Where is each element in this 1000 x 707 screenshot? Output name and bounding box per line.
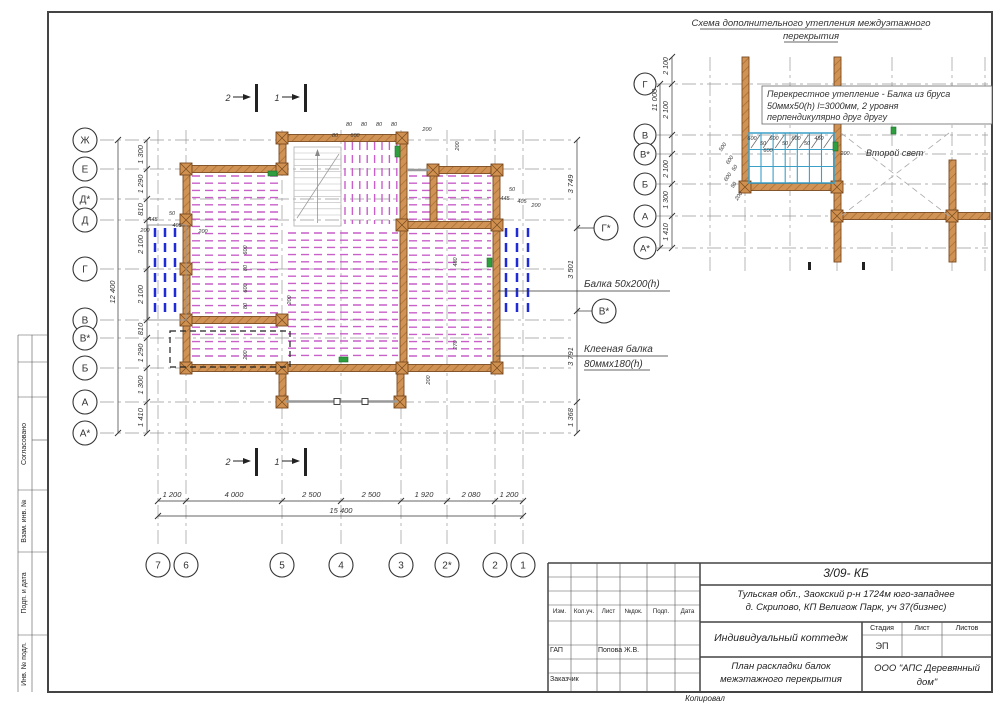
insulation-note-line1: Перекрестное утепление - Балка из бруса [767, 89, 950, 99]
axis-bubble-label: 2 [492, 561, 498, 572]
axis-bubble-label: 5 [279, 561, 285, 572]
axis-bubble-label: В [82, 316, 89, 327]
drawing-sheet: 1 3001 2908102 1002 1008101 2901 3001 41… [0, 0, 1000, 707]
dim-label: 270 [453, 339, 459, 350]
dim-label: 1 [274, 457, 279, 467]
dim-label: 1 [274, 93, 279, 103]
dim-label: 80 [332, 133, 339, 139]
dim-label: 80 [391, 122, 398, 128]
col-list-header: Лист [597, 608, 620, 615]
dim-label: 200 [197, 229, 208, 235]
dim-label: 200 [287, 294, 293, 305]
dim-label: 50 [804, 141, 811, 147]
second-light-label: Второй свет [866, 148, 924, 158]
insulation-note-line3: перпендикулярно друг другу [767, 112, 888, 122]
dim-label: 1 290 [136, 174, 145, 194]
dim-label: 200 [421, 127, 432, 133]
object-name: Индивидуальный коттедж [700, 632, 862, 644]
dim-label: 50 [782, 141, 789, 147]
detail-overall-dim: 11 000 [650, 88, 659, 111]
dim-label: 80 [243, 302, 249, 309]
axis-bubble-label: В* [640, 149, 650, 160]
dim-label: 1 290 [136, 343, 145, 363]
dim-label: 1 200 [500, 490, 520, 499]
col-podp-header: Подп. [647, 608, 675, 615]
dim-label: 2 100 [663, 57, 670, 76]
dim-label: 445 [148, 217, 158, 223]
dim-label: 50 [760, 141, 767, 147]
axis-bubble-label: Г [642, 79, 647, 90]
dim-label: 2 100 [663, 160, 670, 179]
dim-label: 4 000 [225, 490, 245, 499]
detail-scheme-title-line1: Схема дополнительного утепления междуэта… [691, 18, 930, 29]
dim-label: 810 [136, 202, 145, 215]
axis-bubble-label: 7 [155, 561, 161, 572]
stamp-approved-label: Согласовано [18, 399, 32, 489]
col-izm-header: Изм. [548, 608, 571, 615]
dim-label: 480 [453, 256, 459, 266]
dim-label: 1 300 [136, 375, 145, 395]
dim-label: 600 [763, 148, 773, 154]
axis-bubble-label: 3 [398, 561, 404, 572]
dim-label: 80 [346, 122, 353, 128]
beam-50x200-label: Балка 50x200(h) [584, 279, 660, 290]
dim-label: 80 [361, 122, 368, 128]
stage-value: ЭП [862, 641, 902, 651]
glued-beam-label-line2: 80ммх180(h) [584, 359, 643, 370]
axis-bubble-label: 6 [183, 561, 189, 572]
detail-scheme-title-line2: перекрытия [783, 31, 839, 42]
dim-label: 1 410 [136, 407, 145, 427]
axis-bubble-label: Г [82, 265, 88, 276]
dim-label: 600 [723, 171, 734, 183]
dim-label: 200 [839, 151, 850, 157]
axis-bubble-label: А [642, 211, 649, 222]
dim-label: 1 410 [663, 223, 670, 241]
axis-bubble-label: Д [82, 216, 89, 227]
glued-beam-label-line1: Клееная балка [584, 343, 653, 355]
dim-label: 810 [136, 322, 145, 335]
plan-overall-width-dim: 15 400 [330, 506, 354, 515]
gap-name-value: Попова Ж.В. [598, 647, 658, 654]
dim-label: 405 [172, 223, 182, 229]
sheet-name-line1: План раскладки балок [700, 661, 862, 672]
stamp-podp-data-label: Подп. и дата [18, 552, 32, 634]
stamp-inv-podl-label: Инв. № подл. [18, 636, 32, 692]
gap-role-label: ГАП [550, 647, 572, 654]
axis-bubble-label: А [82, 398, 89, 409]
dim-label: 600 [243, 282, 249, 292]
axis-bubble-label: Г* [601, 224, 610, 235]
dim-label: 445 [500, 196, 510, 202]
axis-bubble-label: В* [80, 334, 91, 345]
axis-bubble-label: Б [642, 179, 648, 190]
dim-label: 2 100 [136, 234, 145, 255]
sheets-header: Листов [942, 625, 992, 632]
plan-overall-height-dim: 12 400 [108, 280, 117, 304]
axis-bubble-label: 4 [338, 561, 344, 572]
copied-by-label: Копировал [660, 694, 750, 703]
dim-label: 2 100 [663, 101, 670, 120]
sheet-header: Лист [902, 625, 942, 632]
dim-label: 600 [350, 133, 360, 139]
stamp-vzam-inv-label: Взам. инв. № [18, 490, 32, 552]
col-koluch-header: Кол.уч. [571, 608, 597, 615]
dim-label: 50 [509, 187, 516, 193]
axis-bubble-label: Д* [80, 195, 91, 206]
dim-label: 600 [243, 244, 249, 254]
dim-label: 200 [243, 349, 249, 360]
axis-bubble-label: А* [640, 243, 650, 254]
col-data-header: Дата [675, 608, 700, 615]
dim-label: 50 [169, 211, 176, 217]
axis-bubble-label: В [642, 130, 648, 141]
dim-label: 2 [224, 93, 230, 103]
stage-header: Стадия [862, 625, 902, 632]
dim-label: 1 920 [415, 490, 435, 499]
dim-label: 3 791 [566, 347, 575, 366]
sheet-name-line2: межэтажного перекрытия [700, 674, 862, 685]
dim-label: 1 368 [566, 407, 575, 427]
col-ndok-header: №док. [620, 608, 647, 615]
dim-label: 3 749 [566, 174, 575, 194]
dim-label: 2 500 [301, 490, 322, 499]
axis-bubble-label: А* [80, 429, 91, 440]
dim-label: 600 [769, 136, 779, 142]
dim-label: 600 [791, 136, 801, 142]
dim-label: 2 [224, 457, 230, 467]
dim-label: 1 300 [136, 144, 145, 164]
axis-bubble-label: 1 [520, 561, 526, 572]
project-address-line1: Тульская обл., Заокский р-н 1724м юго-за… [700, 589, 992, 600]
dim-label: 2 100 [136, 284, 145, 305]
dimension-chains: 1 3001 2908102 1002 1008101 2901 3001 41… [115, 54, 851, 519]
dim-label: 1 200 [163, 490, 183, 499]
dim-label: 200 [530, 203, 541, 209]
dim-label: 500 [718, 141, 729, 153]
project-address-line2: д. Скрипово, КП Велигож Парк, уч 37(бизн… [700, 602, 992, 613]
company-name-line2: дом" [862, 677, 992, 688]
insulation-note-line2: 50ммх50(h) l=3000мм, 2 уровня [767, 101, 899, 111]
dim-label: 50 [730, 180, 739, 189]
dim-label: 200 [455, 140, 461, 151]
dim-label: 80 [243, 264, 249, 271]
dim-label: 405 [517, 199, 527, 205]
axis-bubble-label: В* [599, 307, 610, 318]
dim-label: 50 [731, 163, 740, 172]
dim-label: 1 300 [663, 191, 670, 209]
dim-label: 600 [747, 136, 757, 142]
dim-label: 80 [376, 122, 383, 128]
axis-bubbles: ЖЕД*ДГВВ*БАА*765432*21Г*В*ГВВ*БАА* [73, 73, 656, 577]
axis-bubble-label: Е [82, 165, 89, 176]
dim-label: 2 080 [461, 490, 482, 499]
document-number: 3/09- КБ [700, 566, 992, 580]
dim-label: 200 [139, 228, 150, 234]
dim-label: 2 500 [361, 490, 382, 499]
axis-bubble-label: Ж [80, 136, 90, 147]
dim-label: 3 501 [566, 260, 575, 279]
dim-label: 450 [814, 136, 824, 142]
axis-bubble-label: Б [82, 364, 89, 375]
axis-bubble-label: 2* [442, 561, 452, 572]
dim-label: 200 [426, 374, 432, 385]
customer-label: Заказчик [550, 676, 595, 683]
drawing-canvas: 1 3001 2908102 1002 1008101 2901 3001 41… [0, 0, 1000, 707]
company-name-line1: ООО "АПС Деревянный [862, 663, 992, 674]
axis-grid-lines [100, 57, 988, 548]
